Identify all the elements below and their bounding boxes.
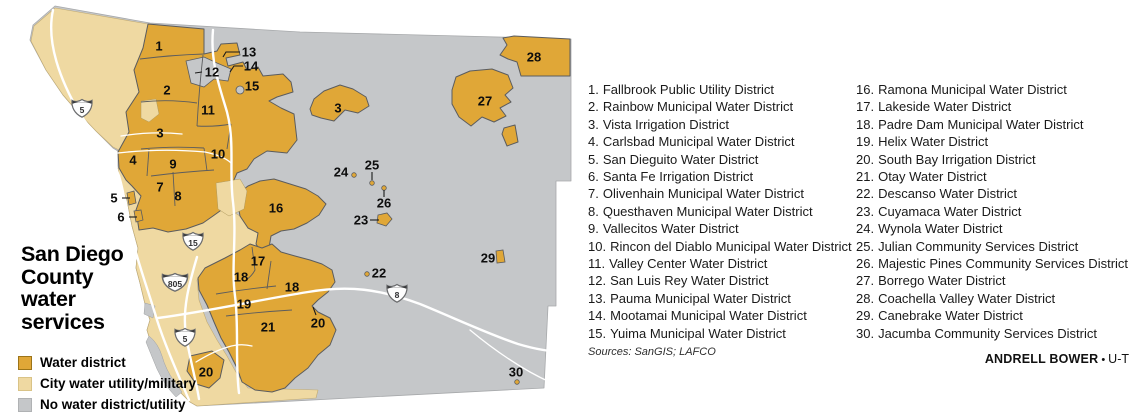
district-name: Questhaven Municipal Water District xyxy=(603,204,813,219)
svg-text:805: 805 xyxy=(168,279,182,289)
title-line: services xyxy=(21,311,123,334)
district-name: South Bay Irrigation District xyxy=(878,152,1036,167)
svg-text:5: 5 xyxy=(80,105,85,115)
district-list-item: 25.Julian Community Services District xyxy=(856,238,1128,255)
district-name: Lakeside Water District xyxy=(878,99,1011,114)
district-list-item: 16.Ramona Municipal Water District xyxy=(856,81,1128,98)
svg-text:5: 5 xyxy=(183,334,188,344)
district-list-item: 17.Lakeside Water District xyxy=(856,98,1128,115)
district-number: 19. xyxy=(856,134,874,149)
district-number: 5. xyxy=(588,152,599,167)
district-list-item: 26.Majestic Pines Community Services Dis… xyxy=(856,255,1128,272)
district-list-item: 7.Olivenhain Municipal Water District xyxy=(588,185,852,202)
district-number: 6. xyxy=(588,169,599,184)
district-number: 20. xyxy=(856,152,874,167)
district-list-item: 9.Vallecitos Water District xyxy=(588,220,852,237)
district-number: 18. xyxy=(856,117,874,132)
district-name: Mootamai Municipal Water District xyxy=(610,308,807,323)
title-line: San Diego xyxy=(21,243,123,266)
legend-swatch xyxy=(18,377,32,391)
district-list-item: 13.Pauma Municipal Water District xyxy=(588,290,852,307)
svg-text:15: 15 xyxy=(188,238,198,248)
credit-bullet: • xyxy=(1101,354,1105,366)
district-number: 26. xyxy=(856,256,874,271)
district-name: Rainbow Municipal Water District xyxy=(603,99,793,114)
district-number: 29. xyxy=(856,308,874,323)
sources-note: Sources: SanGIS; LAFCO xyxy=(588,346,716,358)
district-name: Otay Water District xyxy=(878,169,987,184)
legend-label: No water district/utility xyxy=(40,397,186,412)
district-name: Majestic Pines Community Services Distri… xyxy=(878,256,1128,271)
legend-label: City water utility/military xyxy=(40,376,196,391)
title-line: water xyxy=(21,288,123,311)
district-name: Valley Center Water District xyxy=(609,256,767,271)
district-name: San Luis Rey Water District xyxy=(610,273,768,288)
district-list-item: 20.South Bay Irrigation District xyxy=(856,151,1128,168)
district-name: Wynola Water District xyxy=(878,221,1002,236)
district-name: Yuima Municipal Water District xyxy=(610,326,786,341)
legend-swatch xyxy=(18,398,32,412)
district-name: Carlsbad Municipal Water District xyxy=(603,134,795,149)
district-number: 8. xyxy=(588,204,599,219)
credit-org: U-T xyxy=(1108,352,1129,366)
district-number: 12. xyxy=(588,273,606,288)
district-number: 21. xyxy=(856,169,874,184)
district-name: Julian Community Services District xyxy=(878,239,1078,254)
legend-swatch xyxy=(18,356,32,370)
district-list-item: 19.Helix Water District xyxy=(856,133,1128,150)
svg-text:8: 8 xyxy=(395,290,400,300)
district-number: 24. xyxy=(856,221,874,236)
district-number: 16. xyxy=(856,82,874,97)
district-name: Coachella Valley Water District xyxy=(878,291,1055,306)
credit-byline: ANDRELL BOWER xyxy=(985,352,1098,366)
district-list-item: 27.Borrego Water District xyxy=(856,272,1128,289)
district-name: Canebrake Water District xyxy=(878,308,1023,323)
district-list-item: 6.Santa Fe Irrigation District xyxy=(588,168,852,185)
district-number: 7. xyxy=(588,186,599,201)
district-list-item: 14.Mootamai Municipal Water District xyxy=(588,307,852,324)
district-list-item: 23.Cuyamaca Water District xyxy=(856,203,1128,220)
district-name: Padre Dam Municipal Water District xyxy=(878,117,1083,132)
credit-line: ANDRELL BOWER•U-T xyxy=(985,352,1129,366)
district-name: Ramona Municipal Water District xyxy=(878,82,1067,97)
district-number: 11. xyxy=(588,256,605,271)
district-name: Pauma Municipal Water District xyxy=(610,291,791,306)
district-name: Borrego Water District xyxy=(878,273,1005,288)
map-legend: Water district City water utility/milita… xyxy=(18,352,196,415)
district-name: Vallecitos Water District xyxy=(603,221,739,236)
district-list-item: 29.Canebrake Water District xyxy=(856,307,1128,324)
district-number: 3. xyxy=(588,117,599,132)
district-list-item: 28.Coachella Valley Water District xyxy=(856,290,1128,307)
district-list-item: 18.Padre Dam Municipal Water District xyxy=(856,116,1128,133)
district-name: Helix Water District xyxy=(878,134,988,149)
district-number: 4. xyxy=(588,134,599,149)
district-name: Santa Fe Irrigation District xyxy=(603,169,753,184)
district-list-item: 22.Descanso Water District xyxy=(856,185,1128,202)
district-list-item: 2.Rainbow Municipal Water District xyxy=(588,98,852,115)
district-name: Vista Irrigation District xyxy=(603,117,729,132)
district-number: 10. xyxy=(588,239,606,254)
district-name: Rincon del Diablo Municipal Water Distri… xyxy=(610,239,852,254)
district-list-item: 4.Carlsbad Municipal Water District xyxy=(588,133,852,150)
district-number: 2. xyxy=(588,99,599,114)
district-list-item: 21.Otay Water District xyxy=(856,168,1128,185)
district-number: 23. xyxy=(856,204,874,219)
district-number: 27. xyxy=(856,273,874,288)
district-name: Cuyamaca Water District xyxy=(878,204,1021,219)
district-list-column-1: 1.Fallbrook Public Utility District2.Rai… xyxy=(588,81,852,342)
district-list-item: 24.Wynola Water District xyxy=(856,220,1128,237)
legend-row: City water utility/military xyxy=(18,373,196,394)
title-line: County xyxy=(21,266,123,289)
legend-label: Water district xyxy=(40,355,126,370)
district-list-item: 15.Yuima Municipal Water District xyxy=(588,325,852,342)
district-list-item: 5.San Dieguito Water District xyxy=(588,151,852,168)
district-list-item: 30.Jacumba Community Services District xyxy=(856,325,1128,342)
legend-row: No water district/utility xyxy=(18,394,196,415)
district-name: Descanso Water District xyxy=(878,186,1017,201)
district-list-item: 10.Rincon del Diablo Municipal Water Dis… xyxy=(588,238,852,255)
district-number: 17. xyxy=(856,99,874,114)
district-list-column-2: 16.Ramona Municipal Water District17.Lak… xyxy=(856,81,1128,342)
district-list-item: 1.Fallbrook Public Utility District xyxy=(588,81,852,98)
district-name: San Dieguito Water District xyxy=(603,152,759,167)
district-number: 22. xyxy=(856,186,874,201)
page-title: San Diego County water services xyxy=(21,243,123,333)
district-number: 28. xyxy=(856,291,874,306)
district-list-item: 11.Valley Center Water District xyxy=(588,255,852,272)
district-number: 14. xyxy=(588,308,606,323)
district-name: Fallbrook Public Utility District xyxy=(603,82,774,97)
district-list-item: 8.Questhaven Municipal Water District xyxy=(588,203,852,220)
district-name: Olivenhain Municipal Water District xyxy=(603,186,804,201)
district-list-item: 3.Vista Irrigation District xyxy=(588,116,852,133)
district-list-item: 12.San Luis Rey Water District xyxy=(588,272,852,289)
district-number: 25. xyxy=(856,239,874,254)
district-number: 15. xyxy=(588,326,606,341)
legend-row: Water district xyxy=(18,352,196,373)
district-number: 9. xyxy=(588,221,599,236)
district-name: Jacumba Community Services District xyxy=(878,326,1097,341)
district-number: 1. xyxy=(588,82,599,97)
district-number: 30. xyxy=(856,326,874,341)
district-number: 13. xyxy=(588,291,606,306)
